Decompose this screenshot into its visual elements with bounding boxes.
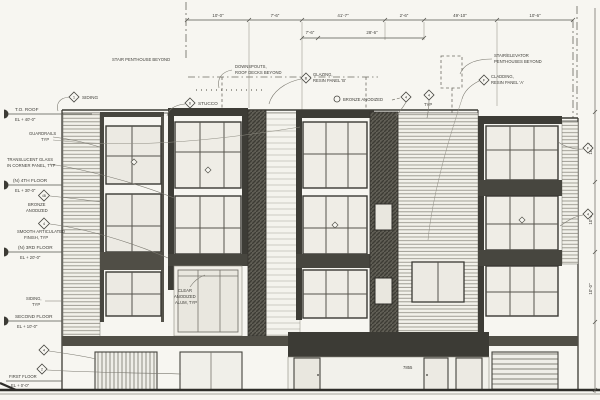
level-3rd-floor: (N) 3RD FLOOR EL + 20'-0" bbox=[4, 245, 62, 260]
note-text: SIDING, bbox=[26, 296, 42, 301]
dim-label: 7'-6" bbox=[271, 13, 280, 18]
level-name: T.O. ROOF bbox=[15, 107, 39, 112]
ground-floor: 7855 bbox=[62, 332, 578, 390]
note-stair-penthouse: STAIR PENTHOUSE BEYOND bbox=[112, 57, 170, 62]
top-dimension-labels: 10'-0" 7'-6" 41'-7" 2'-6" 49'-10" 10'-6" bbox=[212, 13, 541, 18]
note-text: GLAZING, bbox=[313, 72, 333, 77]
sub-dimension-line bbox=[300, 36, 426, 40]
callout-tag: 4B bbox=[42, 194, 47, 198]
note-text: FINISH, TYP bbox=[24, 235, 48, 240]
dim-label: 7'-6" bbox=[306, 30, 315, 35]
punched-window bbox=[375, 278, 392, 304]
dark-core-panel bbox=[370, 112, 398, 336]
lap-siding-sliver bbox=[562, 122, 578, 264]
callout-circle bbox=[334, 96, 340, 102]
window bbox=[303, 270, 367, 318]
window bbox=[486, 126, 558, 180]
note-text: BRONZE bbox=[28, 202, 46, 207]
note-text: RESIN PANEL 'A' bbox=[491, 80, 524, 85]
dim-label: 28'-6" bbox=[366, 30, 378, 35]
note-text: STAIR/ELEVATOR bbox=[494, 53, 529, 58]
glass-door bbox=[456, 358, 482, 390]
note-text: SIDING bbox=[82, 95, 99, 100]
note-text: TYP bbox=[424, 102, 432, 107]
note-text: PENTHOUSES BEYOND bbox=[494, 59, 542, 64]
elevation-drawing-sheet: 10'-0" 7'-6" 41'-7" 2'-6" 49'-10" 10'-6"… bbox=[0, 0, 600, 400]
level-elev: EL + 10'-0" bbox=[17, 324, 38, 329]
punched-window bbox=[375, 204, 392, 230]
dark-fin-panel bbox=[248, 110, 266, 336]
level-4th-floor: (N) 4TH FLOOR EL + 30'-0" bbox=[4, 178, 62, 193]
slatted-gate bbox=[95, 352, 157, 390]
level-name: FIRST FLOOR bbox=[9, 374, 37, 379]
street-address: 7855 bbox=[403, 365, 413, 370]
note-text: TYP bbox=[41, 137, 49, 142]
level-name: (N) 3RD FLOOR bbox=[18, 245, 53, 250]
lap-siding-field-left bbox=[63, 113, 100, 345]
note-downspouts: DOWNSPOUTS, ROOF DECKS BEYOND bbox=[219, 64, 282, 88]
glass-door bbox=[424, 358, 448, 390]
storefront-awning bbox=[288, 332, 489, 357]
glass-door bbox=[294, 358, 320, 390]
note-siding-typ: SIDING, TYP bbox=[26, 296, 63, 307]
building-facade: 7855 bbox=[62, 108, 578, 390]
note-text: IN CORNER PANEL, TYP bbox=[7, 163, 56, 168]
garage-door bbox=[492, 352, 558, 390]
note-text: STUCCO bbox=[198, 101, 218, 106]
level-name: SECOND FLOOR bbox=[15, 314, 53, 319]
siding-field-window bbox=[412, 262, 464, 302]
level-second-floor: SECOND FLOOR EL + 10'-0" bbox=[4, 314, 62, 329]
dim-label: 2'-6" bbox=[400, 13, 409, 18]
window-tower-4 bbox=[478, 116, 562, 336]
window bbox=[106, 272, 161, 316]
note-stair-elev-penthouses: STAIR/ELEVATOR PENTHOUSES BEYOND bbox=[460, 53, 542, 74]
level-elev: EL + 40'-0" bbox=[15, 117, 36, 122]
note-text: ROOF DECKS BEYOND bbox=[235, 70, 282, 75]
dim-label: 41'-7" bbox=[337, 13, 349, 18]
callout-tag: B bbox=[305, 76, 308, 81]
note-text: GUARDRAILS bbox=[29, 131, 56, 136]
note-text: CLEAR bbox=[178, 288, 192, 293]
note-text: BRONZE ANODIZED bbox=[343, 97, 383, 102]
note-text: SMOOTH ARTICULATED bbox=[17, 229, 65, 234]
window bbox=[175, 122, 241, 188]
dim-label: 10'-0" bbox=[212, 13, 224, 18]
note-text: RESIN PANEL 'B' bbox=[313, 78, 346, 83]
note-text: CLADDING, bbox=[491, 74, 514, 79]
window-tower-3 bbox=[296, 110, 374, 320]
note-text: DOWNSPOUTS, bbox=[235, 64, 267, 69]
dim-label: 10'-0" bbox=[588, 283, 593, 295]
level-elev: EL + 20'-0" bbox=[20, 255, 41, 260]
level-first-floor: FIRST FLOOR EL + 0'-0" bbox=[6, 374, 62, 388]
dim-label: 10'-6" bbox=[529, 13, 541, 18]
level-elev: EL + 0'-0" bbox=[11, 383, 30, 388]
note-text: ANODIZED bbox=[26, 208, 48, 213]
window bbox=[486, 266, 558, 316]
stucco-strip bbox=[266, 113, 300, 336]
note-text: TYP bbox=[32, 302, 40, 307]
note-siding-callout: 1 SIDING bbox=[57, 92, 98, 111]
window bbox=[175, 196, 241, 254]
storefront-doors: 7855 bbox=[288, 357, 489, 390]
level-name: (N) 4TH FLOOR bbox=[13, 178, 48, 183]
dim-label: 49'-10" bbox=[453, 13, 467, 18]
note-text: ALUM, TYP bbox=[175, 300, 197, 305]
window bbox=[106, 194, 161, 252]
level-elev: EL + 30'-0" bbox=[15, 188, 36, 193]
window bbox=[303, 122, 367, 188]
note-text: ANODIZED bbox=[174, 294, 196, 299]
window bbox=[106, 126, 161, 184]
note-text: TRANSLUCENT GLASS bbox=[7, 157, 53, 162]
